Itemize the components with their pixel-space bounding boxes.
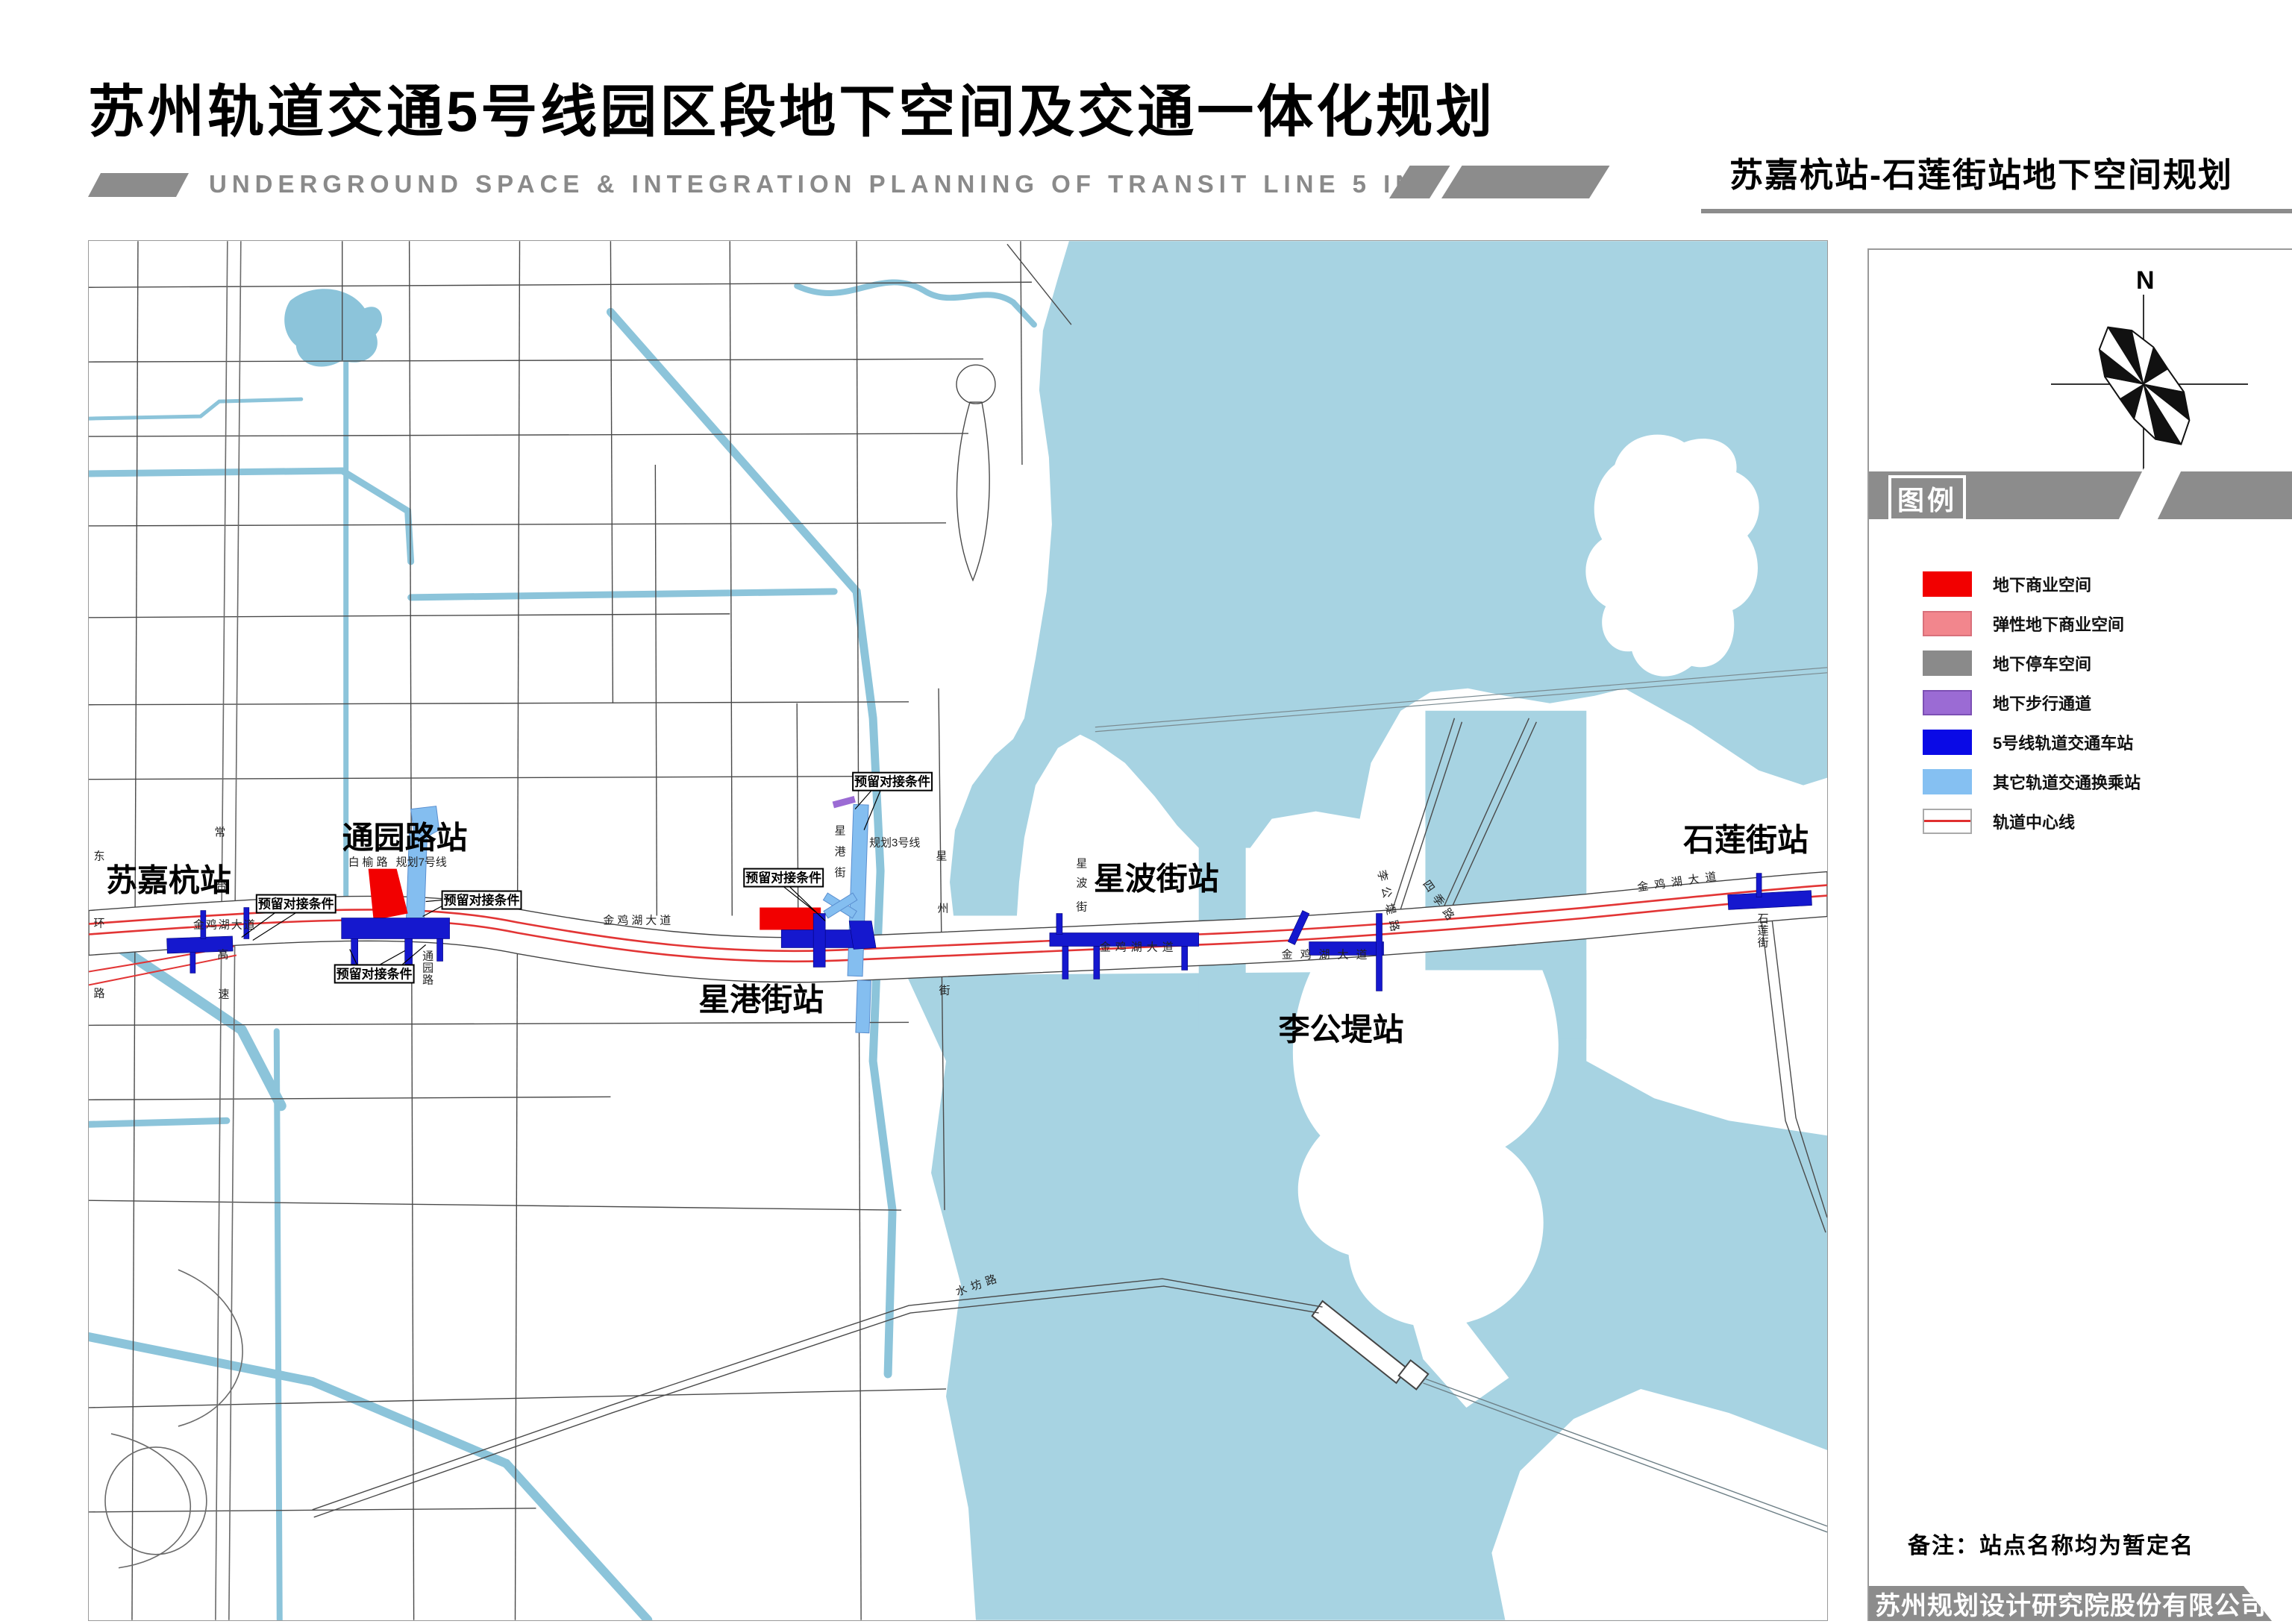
swatch-interchange xyxy=(1923,769,1972,794)
label-jinjihu-1: 金鸡湖大道 xyxy=(193,919,257,932)
label-xingbo-char: 星 xyxy=(1076,858,1087,871)
label-donghuan-char: 东 xyxy=(94,850,105,863)
label-changtai-char: 常 xyxy=(214,827,225,839)
swatch-line5-station xyxy=(1923,730,1972,755)
annotation-box-2: 预留对接条件 xyxy=(444,893,520,908)
subtitle-left-bar xyxy=(88,173,189,197)
label-donghuan: 东 环 路 xyxy=(94,850,105,1000)
subtitle-right-bar xyxy=(1389,166,1609,198)
annotation-box-5: 预留对接条件 xyxy=(745,871,821,885)
pond xyxy=(284,289,382,366)
legend-label: 弹性地下商业空间 xyxy=(1993,612,2124,636)
label-tongyuan: 通 园 路 xyxy=(422,950,433,986)
legend-label: 地下停车空间 xyxy=(1993,651,2091,675)
legend-item-commercial: 地下商业空间 xyxy=(1923,569,2244,599)
company-name: 苏州规划设计研究院股份有限公司 xyxy=(1869,1585,2267,1622)
legend-item-parking: 地下停车空间 xyxy=(1923,648,2244,678)
side-panel: N 图例 地下商业空间 弹性地下商业空间 xyxy=(1867,248,2292,1621)
swatch-rail-centerline xyxy=(1923,809,1972,834)
label-shilian-char: 莲 xyxy=(1758,924,1769,937)
label-xingbojie: 星波街站 xyxy=(1094,862,1219,897)
label-xingzhou-char: 街 xyxy=(939,984,951,997)
legend-band-slash xyxy=(2117,468,2182,524)
underground-walkway xyxy=(833,796,856,808)
label-tongyuan-char: 园 xyxy=(422,962,433,974)
legend-item-interchange: 其它轨道交通换乘站 xyxy=(1923,767,2244,797)
label-shilianjie: 石莲街站 xyxy=(1683,823,1809,858)
compass-rose xyxy=(2083,311,2206,460)
label-xinggang-char: 星 xyxy=(835,825,846,838)
label-tongyuan-char: 路 xyxy=(422,974,433,986)
swatch-commercial xyxy=(1923,571,1972,597)
swatch-parking xyxy=(1923,650,1972,676)
subtitle-bar-notch xyxy=(1430,166,1462,198)
company-band: 苏州规划设计研究院股份有限公司 xyxy=(1869,1586,2272,1621)
page-title: 苏州轨道交通5号线园区段地下空间及交通一体化规划 xyxy=(88,66,1495,148)
label-changtai-char: 台 xyxy=(216,880,227,893)
legend-item-rail-centerline: 轨道中心线 xyxy=(1923,806,2244,836)
xinggang-commercial xyxy=(760,908,821,930)
label-xingbo: 星 波 街 xyxy=(1076,858,1087,914)
legend-label: 轨道中心线 xyxy=(1993,809,2075,833)
annotation-box-1: 预留对接条件 xyxy=(258,897,334,912)
legend-item-flex-commercial: 弹性地下商业空间 xyxy=(1923,609,2244,639)
label-tongyuanlu: 通园路站 xyxy=(342,821,468,856)
rail-centerline-sample xyxy=(1924,820,1970,822)
page-subtitle: UNDERGROUND SPACE & INTEGRATION PLANNING… xyxy=(209,170,1486,198)
note: 备注：站点名称均为暂定名 xyxy=(1908,1527,2194,1560)
tongyuan-commercial xyxy=(369,869,408,921)
label-donghuan-char: 路 xyxy=(94,987,105,1000)
legend-title: 图例 xyxy=(1888,475,1966,521)
sheet-title: 苏嘉杭站-石莲街站地下空间规划 xyxy=(1729,148,2233,196)
swatch-flex-commercial xyxy=(1923,611,1972,636)
label-xinggang-char: 港 xyxy=(835,846,846,859)
label-donghuan-char: 环 xyxy=(94,918,105,930)
legend-label: 地下步行通道 xyxy=(1993,691,2091,715)
label-xinggangjie: 星港街站 xyxy=(698,982,824,1017)
legend-item-walkway: 地下步行通道 xyxy=(1923,688,2244,718)
plan-map: 预留对接条件 预留对接条件 预留对接条件 预留对接条件 预留对接条件 苏嘉杭站 … xyxy=(88,240,1828,1621)
label-line7: 规划7号线 xyxy=(396,856,447,869)
legend-item-line5-station: 5号线轨道交通车站 xyxy=(1923,727,2244,757)
label-xingbo-char: 波 xyxy=(1076,877,1087,890)
annotation-box-3: 预留对接条件 xyxy=(336,966,413,981)
legend-label: 其它轨道交通换乘站 xyxy=(1993,770,2141,794)
annotation-box-4: 预留对接条件 xyxy=(854,774,930,789)
legend-label: 5号线轨道交通车站 xyxy=(1993,730,2133,754)
map-canvas: 预留对接条件 预留对接条件 预留对接条件 预留对接条件 预留对接条件 苏嘉杭站 … xyxy=(89,241,1827,1620)
label-changtai-char: 速 xyxy=(218,988,229,1000)
swatch-walkway xyxy=(1923,690,1972,715)
legend-label: 地下商业空间 xyxy=(1993,572,2091,596)
label-jinjihu-2: 金鸡湖大道 xyxy=(603,915,674,927)
label-xingbo-char: 街 xyxy=(1076,901,1087,914)
label-baiyu: 白榆路 xyxy=(348,856,391,869)
label-shilian: 石 莲 街 xyxy=(1758,913,1769,950)
label-shilian-char: 石 xyxy=(1758,913,1769,926)
sheet-title-rule xyxy=(1701,209,2292,213)
label-jinjihu-3: 金鸡湖大道 xyxy=(1100,941,1178,953)
label-xinggang-char: 街 xyxy=(835,867,846,880)
label-xingzhou-char: 星 xyxy=(936,850,948,863)
label-shilian-char: 街 xyxy=(1758,936,1769,949)
compass: N xyxy=(2048,257,2257,481)
label-jinjihu-4: 金鸡湖大道 xyxy=(1282,948,1375,961)
label-xingzhou-char: 州 xyxy=(938,903,949,915)
label-line3: 规划3号线 xyxy=(869,837,920,850)
compass-north-label: N xyxy=(2136,266,2155,295)
label-ligongdi: 李公堤站 xyxy=(1279,1012,1404,1047)
label-xinggang: 星 港 街 xyxy=(835,825,846,880)
legend-header-band: 图例 xyxy=(1869,471,2292,519)
label-sujiahang: 苏嘉杭站 xyxy=(106,863,231,898)
label-changtai-char: 高 xyxy=(217,948,228,961)
label-tongyuan-char: 通 xyxy=(422,950,433,962)
